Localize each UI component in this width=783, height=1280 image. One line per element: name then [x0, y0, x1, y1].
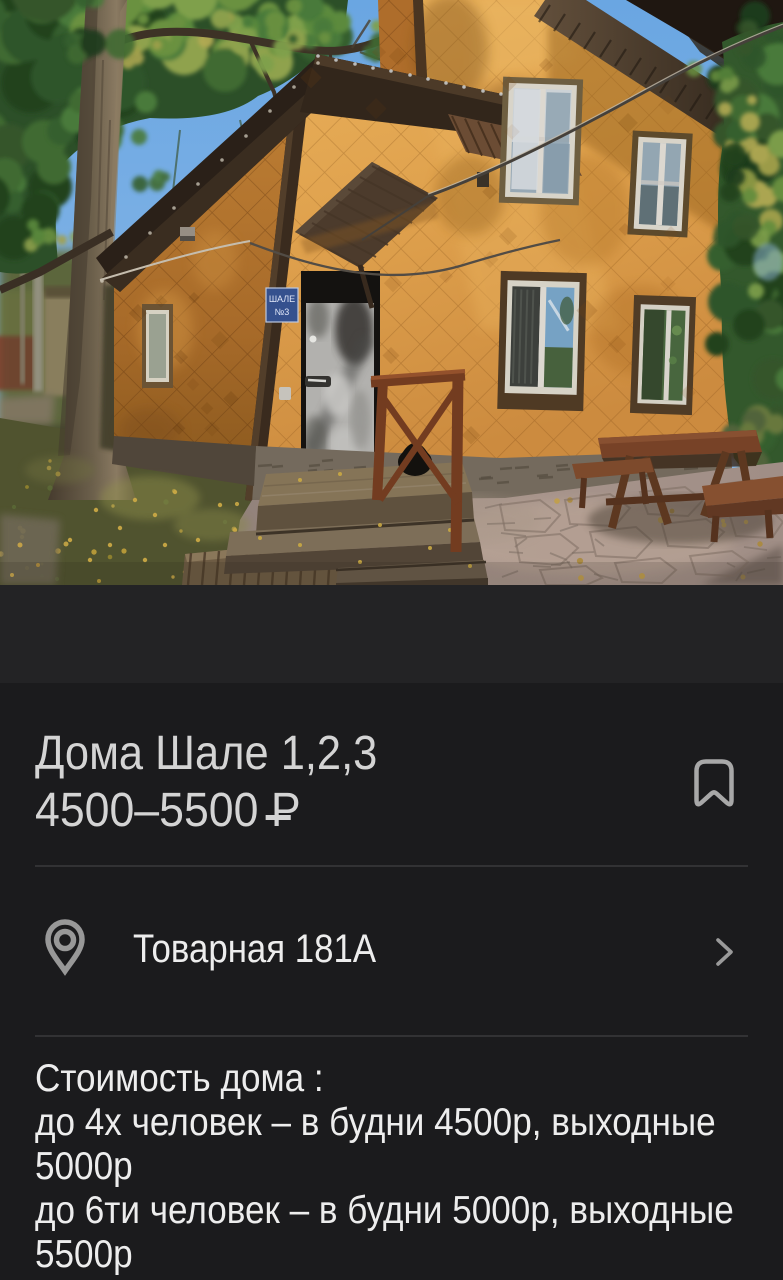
svg-text:ШАЛЕ: ШАЛЕ	[269, 294, 295, 304]
svg-text:№3: №3	[275, 307, 290, 317]
